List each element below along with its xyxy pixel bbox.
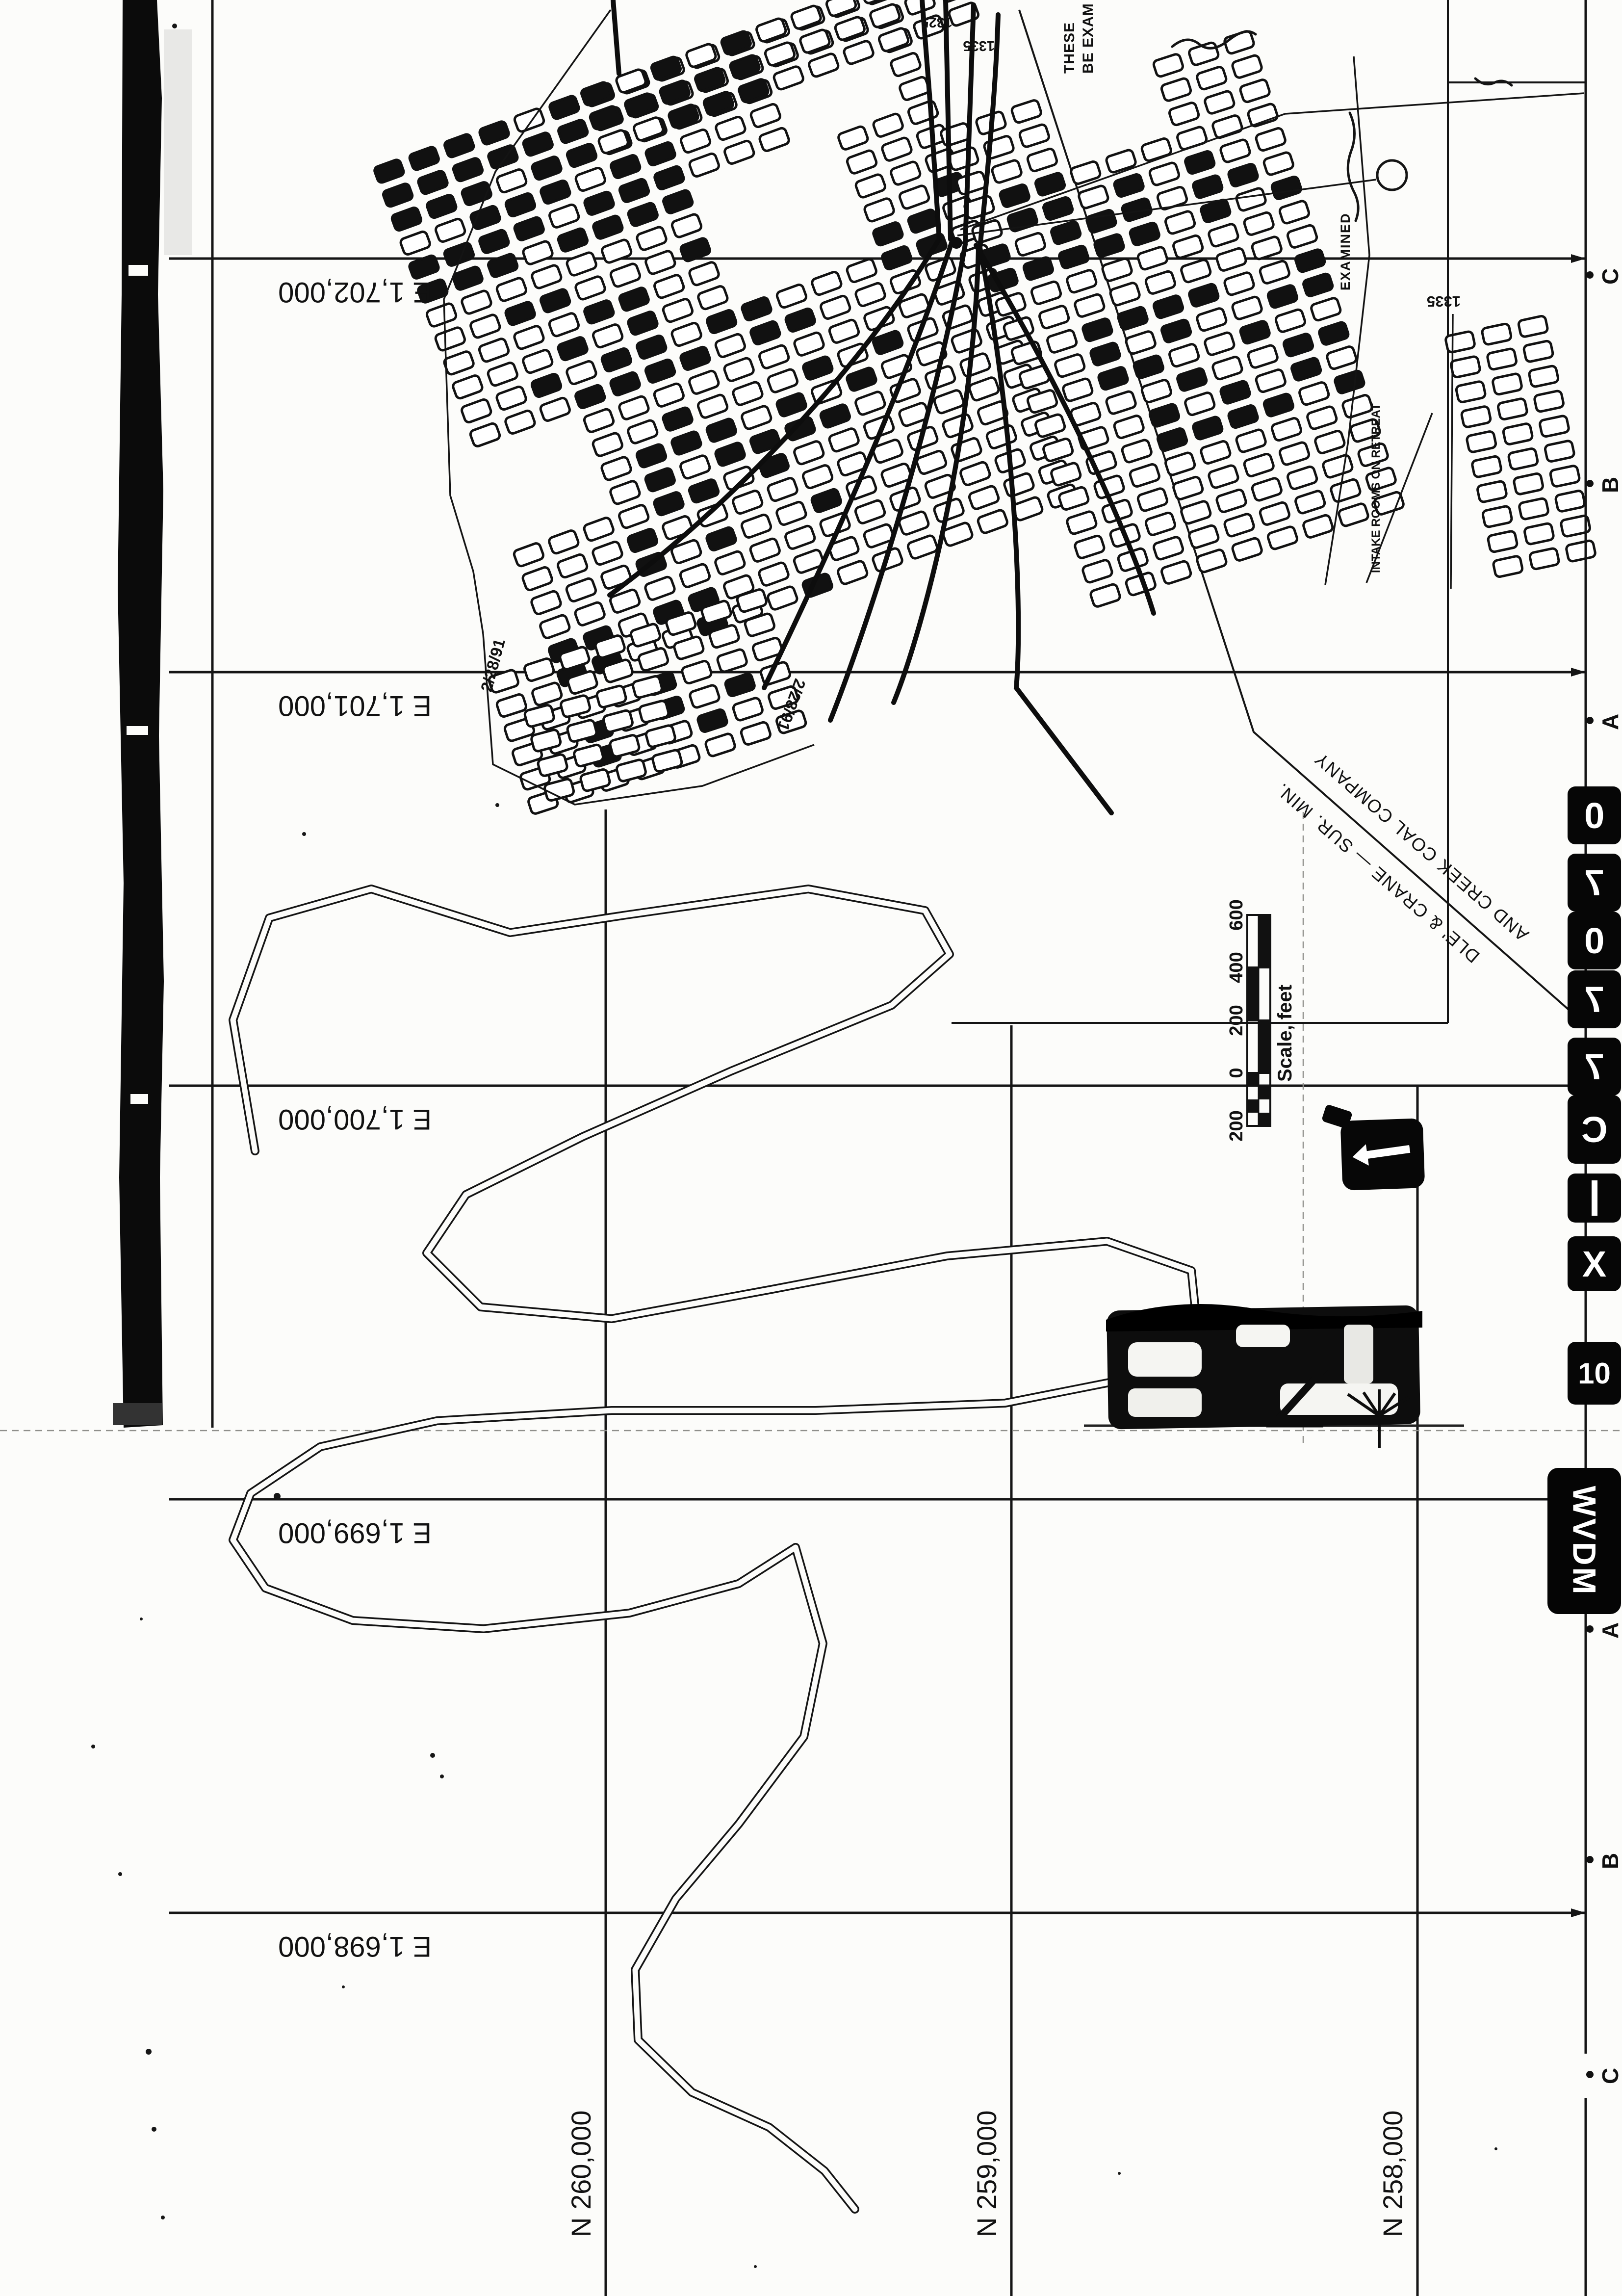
pillar (618, 504, 649, 529)
pillar (820, 295, 851, 320)
pillar-mined (644, 141, 676, 166)
section-marker-dot (1586, 717, 1594, 724)
pillar (1204, 90, 1235, 115)
grid-line-arrowhead (1571, 1908, 1586, 1917)
pillar (1125, 330, 1157, 355)
pillar (583, 408, 615, 433)
pillar (575, 167, 606, 192)
pillar (1188, 42, 1219, 66)
pillar (846, 258, 877, 283)
pillar (679, 563, 711, 588)
pillar-mined (522, 131, 554, 157)
pillar (688, 370, 720, 395)
pillar (843, 40, 874, 65)
pillar (1236, 429, 1267, 453)
pillar-mined (391, 207, 422, 232)
pillar (1196, 548, 1227, 573)
pillar-mined (487, 253, 518, 278)
northing-label: N 260,000 (565, 2070, 588, 2237)
pillar (907, 535, 938, 560)
pillar (513, 542, 544, 567)
pillar (1062, 378, 1093, 402)
pillar (1172, 476, 1204, 500)
pillar (775, 501, 807, 526)
pillar (1074, 535, 1106, 559)
top-note-line-1: THESE (1060, 0, 1079, 74)
pillar (1528, 365, 1559, 388)
pillar-mined (705, 526, 737, 551)
pillar (784, 525, 816, 550)
pillar (1027, 148, 1058, 172)
pillar-mined (1082, 317, 1113, 342)
pillar (890, 52, 921, 77)
scan-speck (274, 1493, 281, 1500)
pillar (681, 660, 713, 684)
pillar-mined (644, 467, 676, 492)
pillar (899, 184, 930, 209)
pillar-mined (1283, 333, 1314, 357)
pillar (652, 749, 683, 772)
grid-line-arrowhead (1571, 254, 1586, 263)
pillar-mined (1133, 355, 1164, 379)
pillar (959, 352, 991, 377)
pillar (522, 349, 553, 374)
pillar (855, 173, 886, 198)
pillar (825, 0, 857, 17)
pillar-mined (417, 170, 448, 195)
pillar-mined (1042, 196, 1074, 221)
pillar-mined (1188, 283, 1219, 308)
pillar (828, 319, 860, 344)
pillar (1342, 394, 1373, 418)
haulage-hub (951, 237, 962, 249)
pillar (662, 515, 693, 540)
pillar (793, 440, 824, 465)
easting-label: E 1,702,000 (211, 269, 432, 309)
pillar (1255, 127, 1287, 152)
pillar (1477, 481, 1507, 503)
pillar (741, 405, 772, 430)
pillar (1259, 260, 1290, 285)
pillar (1539, 415, 1570, 437)
pillar (1208, 465, 1239, 489)
pillar (1200, 440, 1231, 465)
pillar (548, 529, 579, 554)
pillar-mined (557, 228, 589, 253)
pillar (1106, 149, 1137, 174)
pillar (1310, 297, 1341, 321)
film-id-glyph: 7 (1584, 979, 1604, 1020)
workings-patch (1445, 315, 1596, 577)
pillar (767, 368, 798, 393)
pillar (776, 284, 807, 309)
pillar (723, 357, 755, 382)
pillar (1011, 99, 1042, 124)
pillar-mined (820, 403, 851, 428)
pillar (1030, 281, 1062, 305)
pillar (574, 601, 606, 626)
pillar-mined (881, 245, 912, 270)
pillar (1243, 211, 1275, 236)
pillar-mined (1153, 294, 1184, 319)
pillar (400, 231, 431, 256)
pillar (1322, 454, 1353, 479)
pillar (758, 344, 790, 369)
pillar-mined (610, 154, 641, 179)
pillar (644, 576, 675, 601)
pillar (531, 264, 562, 289)
scale-tick-label: 200 (1226, 1109, 1246, 1143)
pillar (540, 397, 571, 422)
pillar (1149, 162, 1180, 186)
pillar (1129, 463, 1160, 488)
shaft-circle (1377, 160, 1407, 190)
pillar (504, 410, 536, 435)
pillar (689, 684, 721, 709)
pillar (566, 252, 597, 277)
pillar-mined (618, 178, 650, 203)
pillar (1137, 488, 1168, 512)
film-id-tile: 7 (1568, 970, 1621, 1028)
pillar-mined (1176, 367, 1208, 392)
pillar (688, 261, 720, 286)
pillar (1534, 390, 1564, 412)
film-id-tile: 0 (1568, 786, 1621, 844)
pillar (1168, 343, 1200, 367)
pillar (1102, 258, 1133, 282)
pillar (636, 226, 667, 251)
pillar-mined (540, 288, 571, 313)
pillar (653, 274, 685, 299)
agency-tag-text: WVDM (1566, 1486, 1603, 1596)
pillar (1271, 417, 1302, 442)
scale-tick-label: 400 (1226, 950, 1246, 985)
pillar (1145, 512, 1176, 536)
pillar-mined (729, 54, 760, 79)
pillar (714, 550, 746, 575)
pillar (1524, 523, 1554, 545)
pillar (959, 461, 991, 486)
pillar (513, 325, 544, 350)
pillar-mined (566, 143, 597, 168)
pillar (469, 313, 501, 339)
scan-speck (140, 1618, 143, 1620)
pillar (890, 160, 921, 185)
pillar-mined (688, 478, 720, 503)
pillar-mined (846, 366, 877, 391)
pillar-mined (636, 443, 667, 468)
pillar (740, 721, 772, 746)
easting-label: E 1,700,000 (211, 1096, 432, 1136)
pillar-mined (1228, 404, 1259, 429)
pillar (435, 218, 466, 243)
pillar (1015, 232, 1046, 257)
pillar (1121, 439, 1153, 464)
pillar (609, 480, 641, 505)
pillar-mined (697, 708, 728, 733)
pillar (759, 127, 790, 152)
pillar-mined (1050, 221, 1081, 245)
pillar (1279, 442, 1310, 466)
pillar (1275, 309, 1306, 333)
section-marker-letter: B (1597, 470, 1620, 493)
film-id-tile: 7 (1568, 854, 1621, 912)
pillar-mined (1302, 273, 1334, 297)
pillar (1038, 305, 1070, 329)
pillar-mined (592, 215, 623, 240)
scale-bar-graphic (1247, 915, 1270, 1126)
scale-bar-label: Scale, feet (1274, 954, 1296, 1082)
pillar-mined (1318, 321, 1349, 346)
northing-label: N 258,000 (1377, 2070, 1399, 2237)
pillar (1172, 235, 1204, 259)
pillar (496, 168, 527, 193)
pillar-mined (644, 359, 676, 384)
pillar (1294, 490, 1326, 515)
pillar (898, 511, 929, 536)
pillar (799, 28, 830, 53)
pillar (802, 464, 833, 489)
pillar-mined (721, 30, 752, 55)
pillar (1298, 381, 1330, 406)
pillar-mined (738, 78, 769, 103)
pillar-mined (627, 202, 659, 227)
pillar (793, 332, 824, 357)
pillar-mined (1220, 380, 1251, 405)
pillar-mined (636, 335, 667, 360)
pillar (1164, 452, 1196, 476)
pillar (1247, 103, 1279, 128)
pillar (1208, 223, 1239, 248)
pillar (685, 43, 717, 68)
pillar (557, 553, 588, 578)
pillar-mined (714, 442, 746, 467)
pillar (697, 394, 728, 419)
pillar (522, 240, 553, 265)
pillar (773, 65, 804, 90)
film-id-glyph: 0 (1584, 795, 1604, 836)
pillar (1078, 185, 1109, 209)
pillar (514, 107, 545, 132)
pillar-mined (1184, 150, 1215, 175)
pillar-mined (785, 308, 816, 333)
pillar (610, 262, 641, 287)
pillar (531, 682, 563, 706)
pillar (523, 657, 555, 682)
pillar (1461, 406, 1492, 428)
scale-tick-label: 200 (1226, 1003, 1246, 1038)
scan-edge-strip (113, 0, 192, 1428)
pillar-mined (1160, 319, 1192, 343)
pillar (601, 239, 632, 264)
pillar (881, 137, 912, 162)
pillar (811, 271, 842, 296)
pillar-mined (531, 373, 562, 398)
pillar (697, 285, 728, 310)
pillar (1267, 526, 1298, 550)
pillar-mined (580, 81, 612, 106)
pillar (461, 290, 492, 315)
pillar (600, 565, 632, 590)
scan-speck (161, 2216, 165, 2219)
pillar (755, 18, 787, 43)
pillar (487, 362, 518, 387)
pillar (697, 502, 728, 527)
pillar (1141, 137, 1172, 162)
pillar-mined (679, 346, 711, 371)
pillar-mined (505, 192, 536, 217)
pillar (1137, 246, 1168, 271)
pillar (1279, 200, 1310, 225)
pillar (846, 150, 877, 175)
pillar (1224, 271, 1255, 296)
pillar-mined (907, 209, 939, 234)
easting-label: E 1,701,000 (211, 683, 432, 722)
scan-speck (342, 1985, 345, 1988)
pillar-mined (1149, 403, 1180, 428)
pillar (1481, 323, 1512, 345)
sheet-number-tag (1340, 1118, 1425, 1191)
scan-speck (1118, 2172, 1121, 2175)
pillar (1109, 282, 1141, 306)
pillar (1141, 379, 1172, 403)
pillar-mined (514, 216, 545, 241)
pillar-mined (749, 320, 781, 345)
pillar (1220, 139, 1251, 163)
pillar (942, 413, 974, 438)
pillar-mined (531, 156, 562, 181)
pillar (548, 312, 580, 337)
section-marker-letter: A (1597, 1616, 1620, 1639)
pillar (1232, 537, 1263, 562)
pillar (592, 541, 623, 566)
pillar (1113, 415, 1145, 439)
pillar-mined (662, 407, 694, 432)
pillar-mined (811, 488, 842, 513)
pillar (530, 590, 562, 615)
pillar (764, 41, 796, 66)
pillar-mined (1239, 320, 1271, 344)
pillar-mined (1094, 234, 1125, 258)
pillar (968, 376, 1000, 401)
pillar-mined (1157, 427, 1188, 452)
pillar (618, 395, 649, 420)
pillar-mined (1117, 306, 1149, 331)
pillar-mined (373, 158, 405, 183)
pillar-mined (1086, 209, 1117, 234)
pillar (1330, 478, 1362, 503)
pillar (461, 398, 492, 423)
pillar (1488, 530, 1518, 552)
pillar (522, 566, 553, 591)
pillar-mined (758, 453, 790, 478)
pillar (1456, 381, 1486, 403)
pillar (715, 333, 746, 358)
scan-speck (118, 1872, 122, 1876)
pillar-mined (505, 301, 536, 326)
pillar (1450, 356, 1481, 378)
pillar (496, 277, 527, 302)
pillar (834, 16, 866, 41)
film-id-glyph: X (1582, 1243, 1606, 1285)
pillar-mined (1334, 370, 1365, 394)
pillar (600, 456, 632, 481)
pillar (750, 103, 781, 128)
pillar-mined (706, 309, 737, 334)
pillar (583, 517, 615, 542)
pillar (592, 432, 623, 457)
pillar-mined (662, 189, 694, 214)
pillar-mined (443, 133, 475, 158)
pillar (854, 391, 886, 416)
pillar (1003, 472, 1034, 497)
pillar-mined (589, 105, 620, 130)
film-id-tile (1568, 1174, 1621, 1223)
pillar (1492, 373, 1522, 395)
section-marker-letter: C (1597, 262, 1620, 285)
pillar (1251, 477, 1283, 502)
pillar (767, 477, 798, 502)
pillar-mined (741, 296, 772, 321)
pillar (1503, 423, 1533, 445)
pillar (1523, 340, 1554, 363)
pillar-mined (670, 430, 702, 455)
pillar (1243, 453, 1275, 477)
pillar (1471, 456, 1502, 478)
pillar (991, 159, 1023, 184)
pillar (916, 450, 947, 475)
pillar (548, 204, 580, 229)
pillar (1445, 331, 1475, 353)
pillar-mined (1192, 416, 1223, 441)
film-id-divider (1592, 1180, 1597, 1216)
pillar-mined (452, 157, 484, 182)
film-id-glyph: 7 (1584, 862, 1604, 904)
pillar-mined (653, 491, 684, 516)
pillar (1180, 500, 1211, 525)
pillar (828, 427, 860, 452)
pillar-mined (802, 356, 833, 381)
top-margin-note: THESE BE EXAM (1060, 0, 1098, 74)
pillar (671, 213, 702, 238)
pillar (933, 389, 965, 414)
sheet-number-glyph (1351, 1138, 1411, 1168)
pillar (639, 700, 669, 723)
pillar-mined (659, 79, 691, 104)
pillar-mined (1290, 357, 1322, 382)
pillar-mined (1228, 163, 1259, 187)
scan-speck (754, 2265, 757, 2268)
grid-line-arrowhead (1571, 668, 1586, 677)
pillar (539, 614, 570, 639)
pillar (723, 140, 755, 165)
pillar-mined (1263, 393, 1294, 417)
pillar-mined (650, 56, 682, 81)
pillar (1153, 53, 1184, 78)
pillar-mined (703, 91, 734, 116)
pillar-mined (461, 181, 492, 206)
pillar (732, 381, 763, 406)
pillar (1066, 511, 1097, 535)
section-marker-dot (1586, 480, 1594, 487)
pillar (732, 490, 763, 515)
pillar (863, 197, 895, 222)
pillar-mined (1023, 257, 1054, 281)
film-id-glyph: 0 (1584, 920, 1604, 962)
film-id-tile: 10 (1568, 1342, 1621, 1405)
section-marker-dot (1586, 2071, 1594, 2078)
scan-speck (146, 2049, 152, 2055)
